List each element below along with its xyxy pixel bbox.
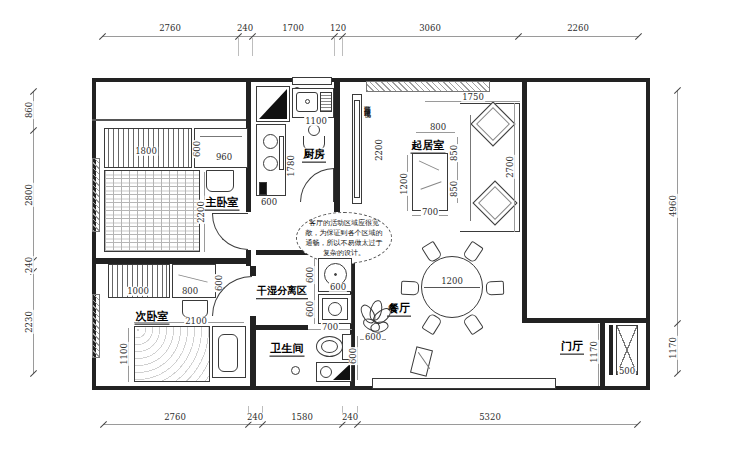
dim-plant: 600: [364, 333, 382, 342]
stove-panel: [279, 136, 284, 170]
dim-tick: [634, 421, 641, 428]
dim-tv-stand-length: 1200: [400, 172, 409, 196]
refrigerator-fill: [259, 89, 287, 119]
dim-sofa-offset: 800: [429, 123, 447, 132]
room-label-living-room: 起居室: [411, 139, 446, 154]
entry-door-leaf: [609, 325, 613, 375]
dining-chair: [421, 313, 442, 336]
dim-wardrobe-second: 1000: [126, 287, 150, 296]
stove-burner-2: [263, 156, 278, 171]
washing-machine-drum: [328, 302, 342, 316]
dim-sofa-length: 2700: [506, 155, 515, 179]
window-master-bedroom: [92, 158, 100, 232]
dim-top-240: 240: [236, 24, 254, 33]
dim-tick: [674, 370, 681, 377]
toilet-bowl-inner: [321, 340, 338, 353]
dim-tv-stand-width: 700: [421, 208, 439, 217]
dim-left-240: 240: [25, 256, 34, 274]
dim-tick: [30, 370, 37, 377]
wall-right-room-left: [522, 82, 527, 321]
sink-faucet: [305, 99, 310, 104]
kitchen-black-fixture: [259, 182, 267, 195]
dim-desk-width: 800: [181, 287, 199, 296]
dining-chair: [486, 281, 504, 296]
dimension-line-right: [677, 90, 678, 373]
dim-top-2260: 2260: [566, 24, 590, 33]
dresser: [194, 128, 248, 168]
door-leaf-master-bedroom: [212, 213, 248, 214]
dim-sofa-seat-b: 850: [450, 180, 459, 198]
door-arc-master-bedroom: [212, 214, 248, 250]
dim-wardrobe-master: 1800: [134, 147, 158, 156]
bath-black-triangle: [333, 364, 350, 380]
stove-burner-1: [263, 134, 278, 149]
bath-counter-sink: [320, 366, 332, 378]
dim-wardrobe-master-depth: 600: [193, 140, 202, 158]
wall-drywet-bath: [256, 325, 308, 330]
window-second-bedroom: [92, 294, 100, 358]
dim-bottom-240: 240: [246, 413, 264, 422]
wall-kitchen-living: [334, 82, 340, 212]
floor-plan-drawing: 2760 240 1700 120 3060 2260 2760 240 158…: [0, 0, 740, 462]
floor-drain: [291, 366, 300, 375]
wall-entry-niche: [600, 323, 605, 386]
dim-right-1170: 1170: [669, 336, 678, 360]
room-label-kitchen: 厨房: [302, 148, 326, 163]
dim-dining-table: 1200: [440, 277, 464, 286]
window-kitchen: [292, 77, 332, 85]
dim-line-sofa-offset: [416, 132, 455, 133]
tv-wall-annotation: 墙面壁挂电视: [363, 100, 370, 188]
room-label-master-bedroom: 主卧室: [205, 196, 240, 211]
dim-bed-second-width: 1100: [120, 342, 129, 366]
dimension-line-bottom: [103, 424, 637, 425]
dim-sofa-seat-a: 850: [450, 144, 459, 162]
dim-washer-depth: 600: [306, 300, 315, 318]
wall-bay: [92, 119, 250, 121]
sofa-seat-edge: [470, 115, 471, 221]
dim-top-1700: 1700: [281, 24, 305, 33]
dresser-detail: [200, 136, 242, 137]
dim-extension: [252, 38, 253, 56]
person-figure: [308, 124, 320, 136]
room-label-bathroom: 卫生间: [270, 342, 305, 357]
dim-tv-wall: 2200: [375, 138, 384, 162]
dim-bottom-2760: 2760: [163, 413, 187, 422]
dim-top-2760: 2760: [158, 24, 182, 33]
designer-note-bubble: 客厅的活动区域应很宽敞，为保证到各个区域的通畅，所以不易做太过于复杂的设计。: [296, 212, 392, 264]
dim-tick: [635, 33, 642, 40]
shoe-bench: [372, 378, 556, 389]
dish-rack: [320, 92, 332, 112]
dim-bottom-1580: 1580: [290, 413, 314, 422]
dim-bottom-240b: 240: [341, 413, 359, 422]
door-arc-kitchen: [300, 168, 334, 202]
room-label-entry-hall: 门厅: [560, 340, 584, 355]
dresser-stool: [206, 170, 234, 192]
wall-outer-bottom: [92, 386, 650, 390]
dim-basin-width: 600: [329, 283, 347, 292]
dim-basin-depth: 600: [306, 266, 315, 284]
dining-chair: [462, 313, 484, 336]
dimension-line-top: [102, 36, 638, 37]
room-label-dry-wet-area: 干湿分离区: [256, 285, 308, 299]
dim-entry-depth: 1170: [590, 340, 599, 364]
dim-left-2800: 2800: [25, 183, 34, 207]
dim-bath-counter: 600: [349, 347, 358, 365]
dim-top-120: 120: [329, 24, 347, 33]
wall-outer-right: [646, 78, 650, 390]
dim-left-2230: 2230: [25, 310, 34, 334]
dim-entry-cabinet: 500: [618, 367, 636, 376]
dim-extension: [238, 38, 239, 56]
bed-second: [134, 326, 210, 382]
dim-bed-second-length: 2100: [184, 317, 208, 326]
dim-bottom-5320: 5320: [478, 413, 502, 422]
dim-extension: [334, 38, 335, 56]
dim-kitchen-counter-length: 1780: [287, 154, 296, 178]
dim-extension: [342, 38, 343, 56]
dim-bath-opening: 700: [321, 323, 339, 332]
nightstand-inner: [218, 334, 238, 372]
dining-table-diameter-line: [424, 287, 480, 288]
dim-kitchen-sink: 1100: [304, 117, 328, 126]
washbasin-drain: [334, 273, 337, 276]
dim-right-4960: 4960: [669, 194, 678, 218]
wall-right-room-bottom: [522, 318, 650, 323]
dim-top-3060: 3060: [418, 24, 442, 33]
tv-wall-cabinet-inner: [354, 100, 360, 198]
tv-stand: [412, 153, 448, 211]
dim-kitchen-counter-depth: 600: [260, 198, 278, 207]
dim-sofa-width: 1750: [461, 93, 485, 102]
dining-chair: [401, 281, 419, 296]
dim-left-860: 860: [25, 101, 34, 119]
designer-note-text: 客厅的活动区域应很宽敞，为保证到各个区域的通畅，所以不易做太过于复杂的设计。: [305, 218, 382, 259]
wall-bedroom2-right-a: [250, 266, 256, 276]
entry-stool: [410, 346, 433, 376]
bed-master: [104, 170, 200, 252]
window-living-room: [366, 81, 490, 92]
door-leaf-kitchen: [333, 168, 334, 202]
dim-dresser: 960: [215, 153, 233, 162]
